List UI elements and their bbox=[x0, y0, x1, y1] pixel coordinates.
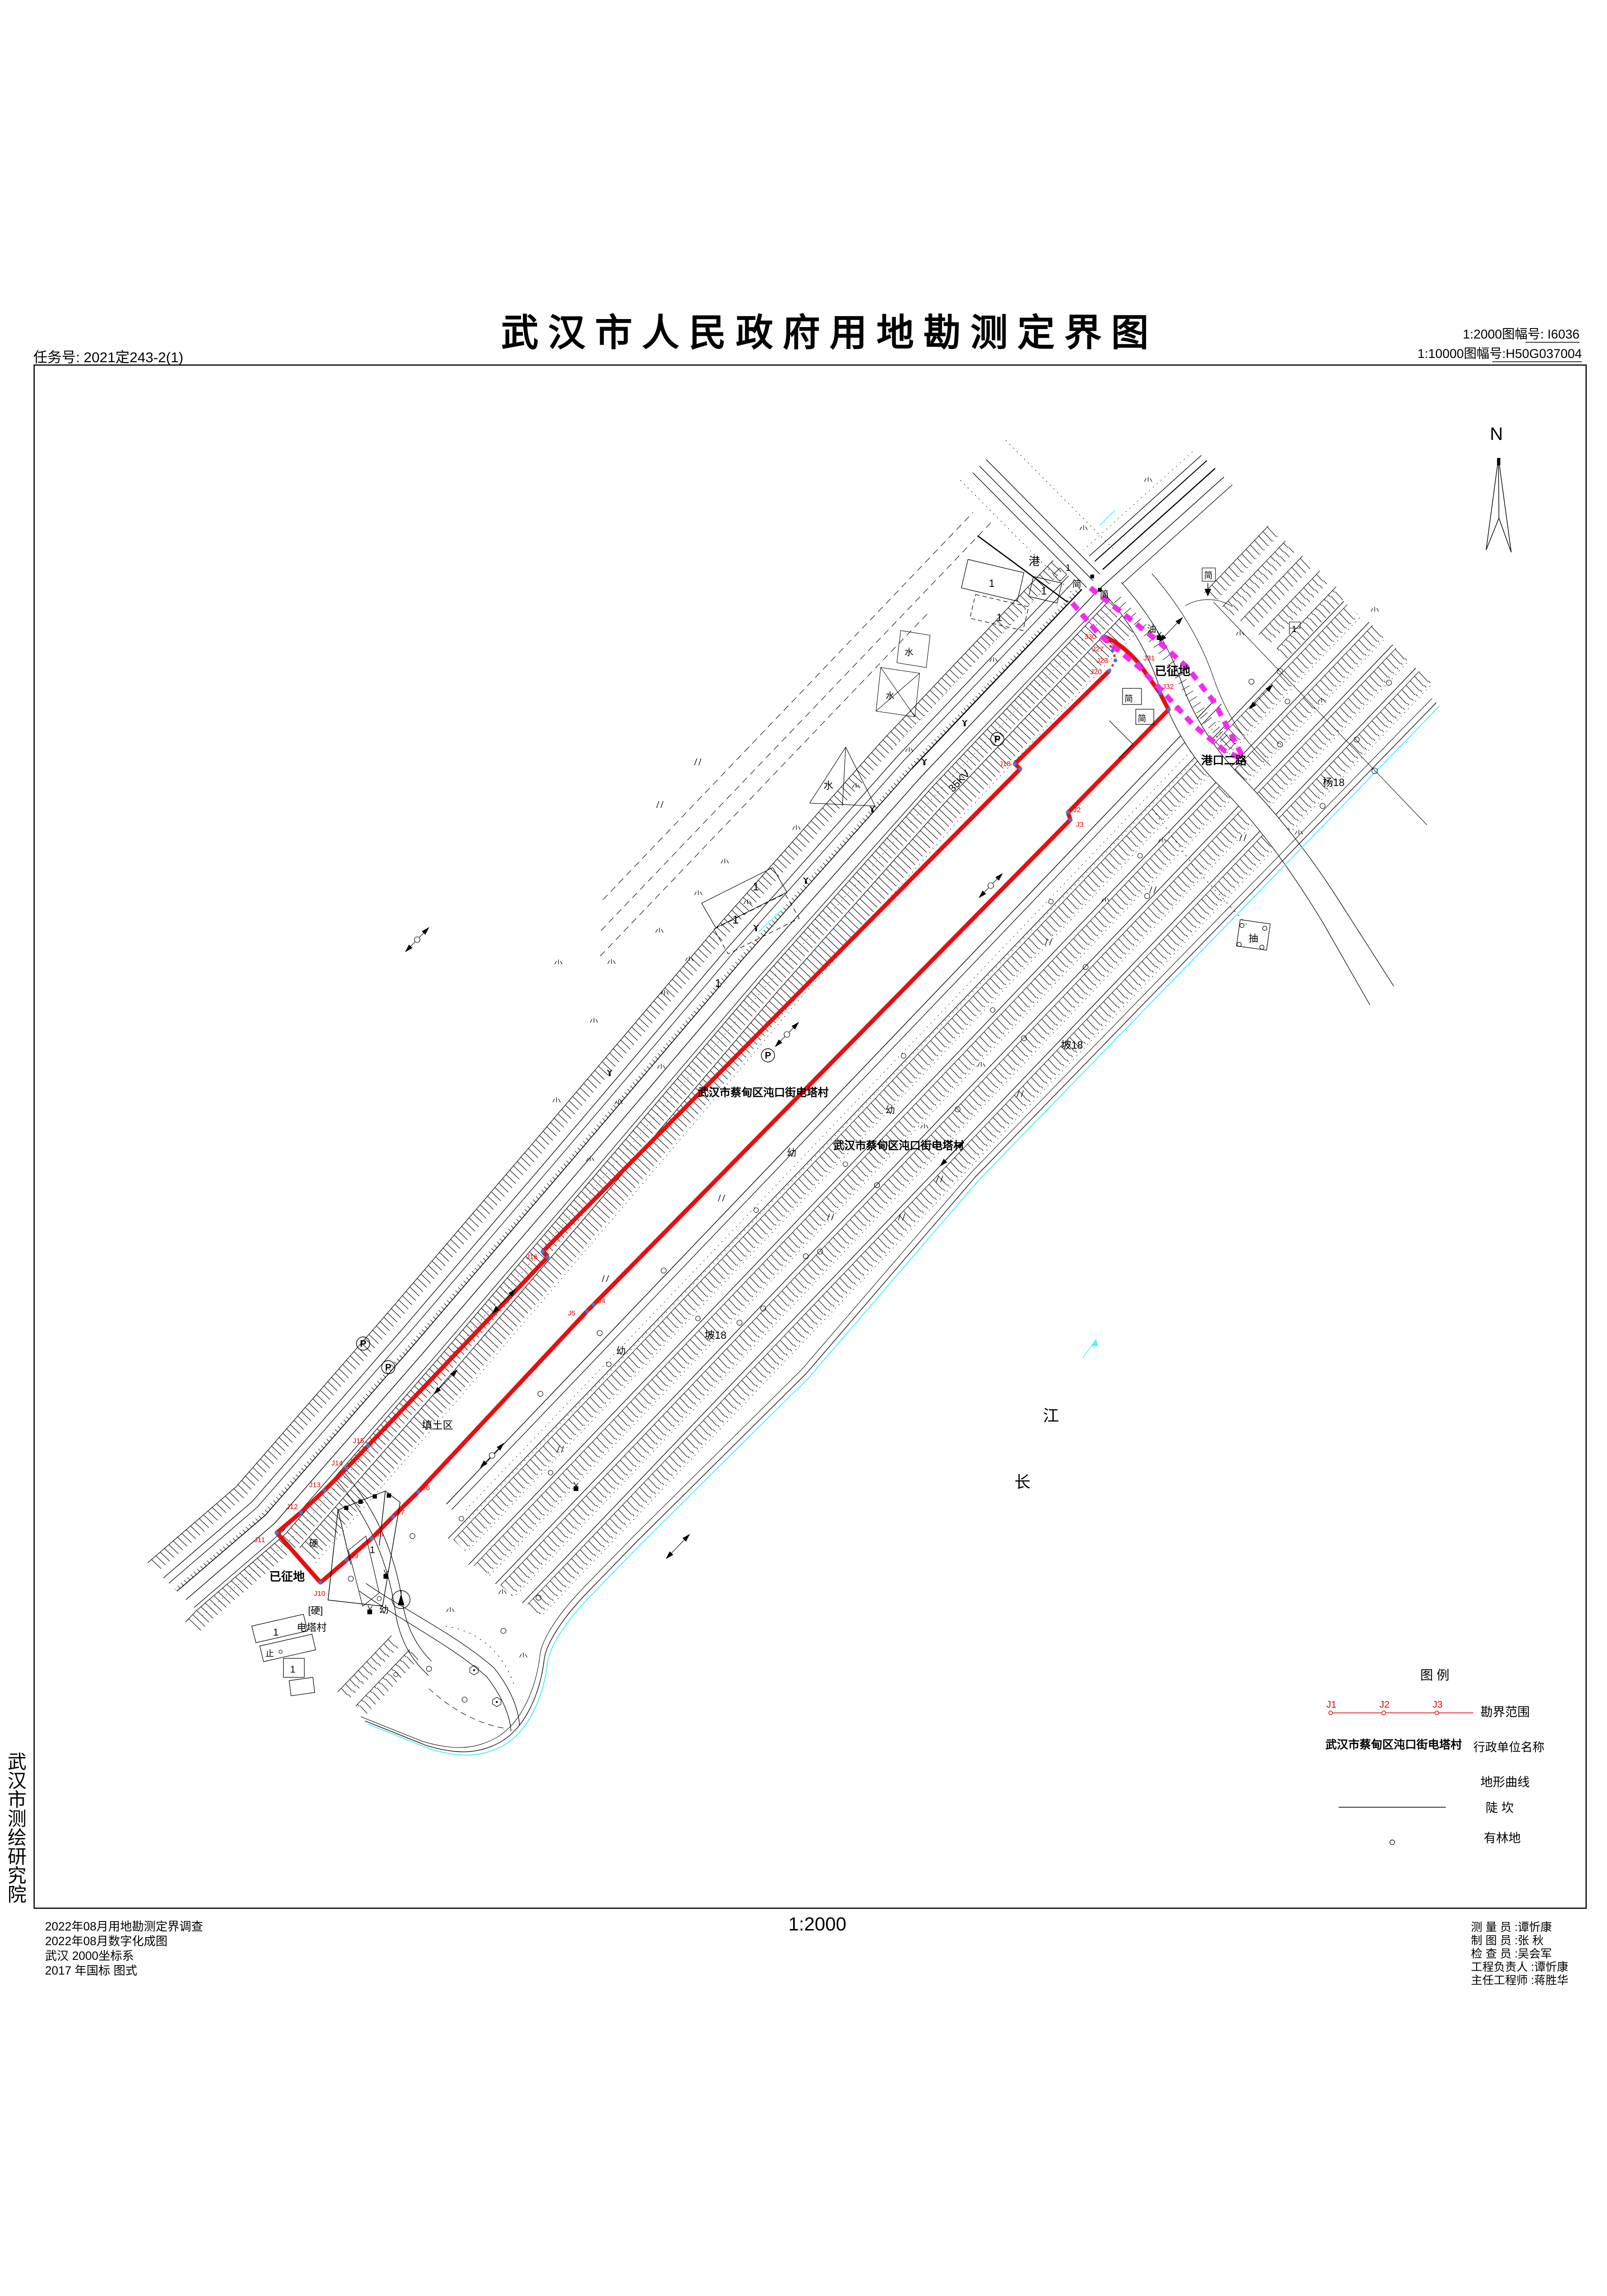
svg-text:2022年08月数字化成图: 2022年08月数字化成图 bbox=[45, 1935, 167, 1948]
svg-text:武: 武 bbox=[8, 1752, 27, 1773]
svg-text:测 量 员 :谭忻康: 测 量 员 :谭忻康 bbox=[1471, 1921, 1552, 1934]
svg-text:J2: J2 bbox=[1379, 1700, 1389, 1710]
svg-text:止: 止 bbox=[265, 1649, 274, 1658]
svg-text:J23: J23 bbox=[1096, 657, 1108, 665]
svg-text:武汉市蔡甸区沌口街电塔村: 武汉市蔡甸区沌口街电塔村 bbox=[833, 1139, 964, 1152]
svg-text:1:2000: 1:2000 bbox=[788, 1914, 846, 1935]
svg-text:P: P bbox=[994, 734, 1000, 745]
svg-text:1: 1 bbox=[1041, 585, 1047, 597]
svg-text:J10: J10 bbox=[314, 1590, 325, 1598]
svg-text:勘界范围: 勘界范围 bbox=[1480, 1705, 1530, 1719]
svg-text:简: 简 bbox=[1124, 694, 1133, 704]
svg-text:1:10000图幅号:H50G037004: 1:10000图幅号:H50G037004 bbox=[1417, 347, 1582, 361]
svg-text:图 例: 图 例 bbox=[1420, 1668, 1450, 1683]
svg-text:1: 1 bbox=[1292, 624, 1297, 634]
svg-text:坡18: 坡18 bbox=[1061, 1039, 1083, 1051]
svg-text:P: P bbox=[765, 1051, 771, 1061]
svg-text:P: P bbox=[360, 1339, 366, 1349]
svg-text:究: 究 bbox=[8, 1866, 27, 1886]
svg-text:幼: 幼 bbox=[886, 1105, 895, 1116]
svg-text:J9: J9 bbox=[351, 1552, 358, 1560]
svg-text:J3: J3 bbox=[1076, 821, 1084, 829]
svg-text:已征地: 已征地 bbox=[1155, 664, 1190, 678]
svg-text:长: 长 bbox=[1014, 1473, 1031, 1491]
svg-text:J2: J2 bbox=[1073, 806, 1081, 814]
svg-text:N: N bbox=[1490, 424, 1503, 444]
svg-text:幼: 幼 bbox=[616, 1345, 626, 1356]
svg-text:坡18: 坡18 bbox=[704, 1329, 726, 1341]
svg-text:水: 水 bbox=[823, 780, 833, 791]
svg-text:1: 1 bbox=[996, 612, 1002, 623]
svg-text:院: 院 bbox=[8, 1884, 27, 1905]
svg-text:J13: J13 bbox=[309, 1481, 320, 1489]
svg-text:研: 研 bbox=[8, 1847, 27, 1867]
svg-text:J18: J18 bbox=[999, 760, 1011, 768]
svg-text:J3: J3 bbox=[1433, 1700, 1443, 1710]
svg-text:1: 1 bbox=[370, 1545, 375, 1555]
svg-text:江: 江 bbox=[1043, 1407, 1059, 1425]
svg-text:简: 简 bbox=[1138, 714, 1146, 723]
svg-text:J11: J11 bbox=[254, 1536, 265, 1544]
svg-text:1: 1 bbox=[989, 577, 995, 589]
svg-text:J31: J31 bbox=[1143, 654, 1155, 662]
svg-text:工程负责人 :谭忻康: 工程负责人 :谭忻康 bbox=[1471, 1961, 1568, 1974]
svg-text:J32: J32 bbox=[1162, 683, 1174, 691]
svg-text:水: 水 bbox=[886, 691, 895, 701]
svg-text:1: 1 bbox=[715, 977, 721, 990]
svg-text:P: P bbox=[385, 1363, 391, 1373]
svg-text:J4: J4 bbox=[598, 1297, 605, 1305]
svg-text:J15: J15 bbox=[353, 1437, 364, 1445]
svg-text:J27: J27 bbox=[1092, 645, 1104, 653]
svg-text:任务号: 2021定243-2(1): 任务号: 2021定243-2(1) bbox=[33, 350, 183, 366]
svg-text:油: 油 bbox=[1147, 624, 1156, 634]
svg-text:幼: 幼 bbox=[787, 1147, 796, 1158]
svg-text:J1: J1 bbox=[1326, 1700, 1336, 1710]
svg-text:武汉市蔡甸区沌口街电塔村: 武汉市蔡甸区沌口街电塔村 bbox=[1325, 1738, 1462, 1751]
svg-text:简: 简 bbox=[1072, 579, 1081, 589]
svg-text:抽: 抽 bbox=[1249, 933, 1258, 944]
svg-text:武汉市蔡甸区沌口街电塔村: 武汉市蔡甸区沌口街电塔村 bbox=[698, 1086, 829, 1098]
svg-text:主任工程师 :蒋胜华: 主任工程师 :蒋胜华 bbox=[1471, 1974, 1568, 1987]
svg-text:J8: J8 bbox=[376, 1530, 383, 1538]
svg-text:J30: J30 bbox=[1085, 633, 1096, 641]
svg-text:1: 1 bbox=[273, 1627, 279, 1638]
svg-text:检 查 员 :吴会军: 检 查 员 :吴会军 bbox=[1471, 1948, 1552, 1960]
svg-text:填土区: 填土区 bbox=[422, 1419, 453, 1431]
svg-text:汉: 汉 bbox=[8, 1771, 27, 1792]
svg-text:1: 1 bbox=[290, 1665, 295, 1675]
svg-text:J5: J5 bbox=[568, 1309, 575, 1317]
svg-text:港: 港 bbox=[1029, 555, 1040, 568]
svg-text:杨18: 杨18 bbox=[1323, 777, 1344, 788]
svg-text:电塔村: 电塔村 bbox=[297, 1622, 327, 1633]
svg-text:[硬]: [硬] bbox=[308, 1606, 323, 1616]
svg-text:1: 1 bbox=[732, 914, 739, 926]
svg-text:港口二路: 港口二路 bbox=[1201, 754, 1247, 767]
svg-text:1: 1 bbox=[1066, 563, 1071, 573]
svg-text:硬: 硬 bbox=[309, 1539, 318, 1549]
svg-text:测: 测 bbox=[8, 1809, 27, 1829]
svg-text:简: 简 bbox=[1204, 571, 1213, 580]
svg-text:2022年08月用地勘测定界调查: 2022年08月用地勘测定界调查 bbox=[45, 1920, 203, 1933]
svg-text:制 图 员 :张 秋: 制 图 员 :张 秋 bbox=[1471, 1934, 1543, 1947]
svg-text:市: 市 bbox=[8, 1790, 27, 1811]
svg-text:1: 1 bbox=[753, 880, 759, 893]
svg-text:已征地: 已征地 bbox=[269, 1570, 305, 1583]
svg-text:2017 年国标 图式: 2017 年国标 图式 bbox=[45, 1964, 137, 1977]
svg-text:水: 水 bbox=[904, 647, 913, 658]
svg-text:武汉市人民政府用地勘测定界图: 武汉市人民政府用地勘测定界图 bbox=[501, 311, 1158, 354]
svg-text:陡 坎: 陡 坎 bbox=[1486, 1801, 1514, 1815]
svg-text:J6: J6 bbox=[422, 1484, 430, 1492]
svg-text:J12: J12 bbox=[286, 1503, 298, 1511]
svg-text:行政单位名称: 行政单位名称 bbox=[1473, 1741, 1544, 1754]
svg-text:地形曲线: 地形曲线 bbox=[1480, 1775, 1530, 1789]
svg-text:绘: 绘 bbox=[8, 1828, 27, 1848]
svg-text:有林地: 有林地 bbox=[1484, 1831, 1521, 1845]
svg-text:1:2000图幅号: I6036: 1:2000图幅号: I6036 bbox=[1463, 327, 1580, 341]
svg-text:J16: J16 bbox=[526, 1253, 538, 1261]
svg-text:武汉 2000坐标系: 武汉 2000坐标系 bbox=[45, 1949, 134, 1963]
svg-text:J14: J14 bbox=[331, 1459, 343, 1467]
svg-text:J20: J20 bbox=[1090, 668, 1102, 676]
